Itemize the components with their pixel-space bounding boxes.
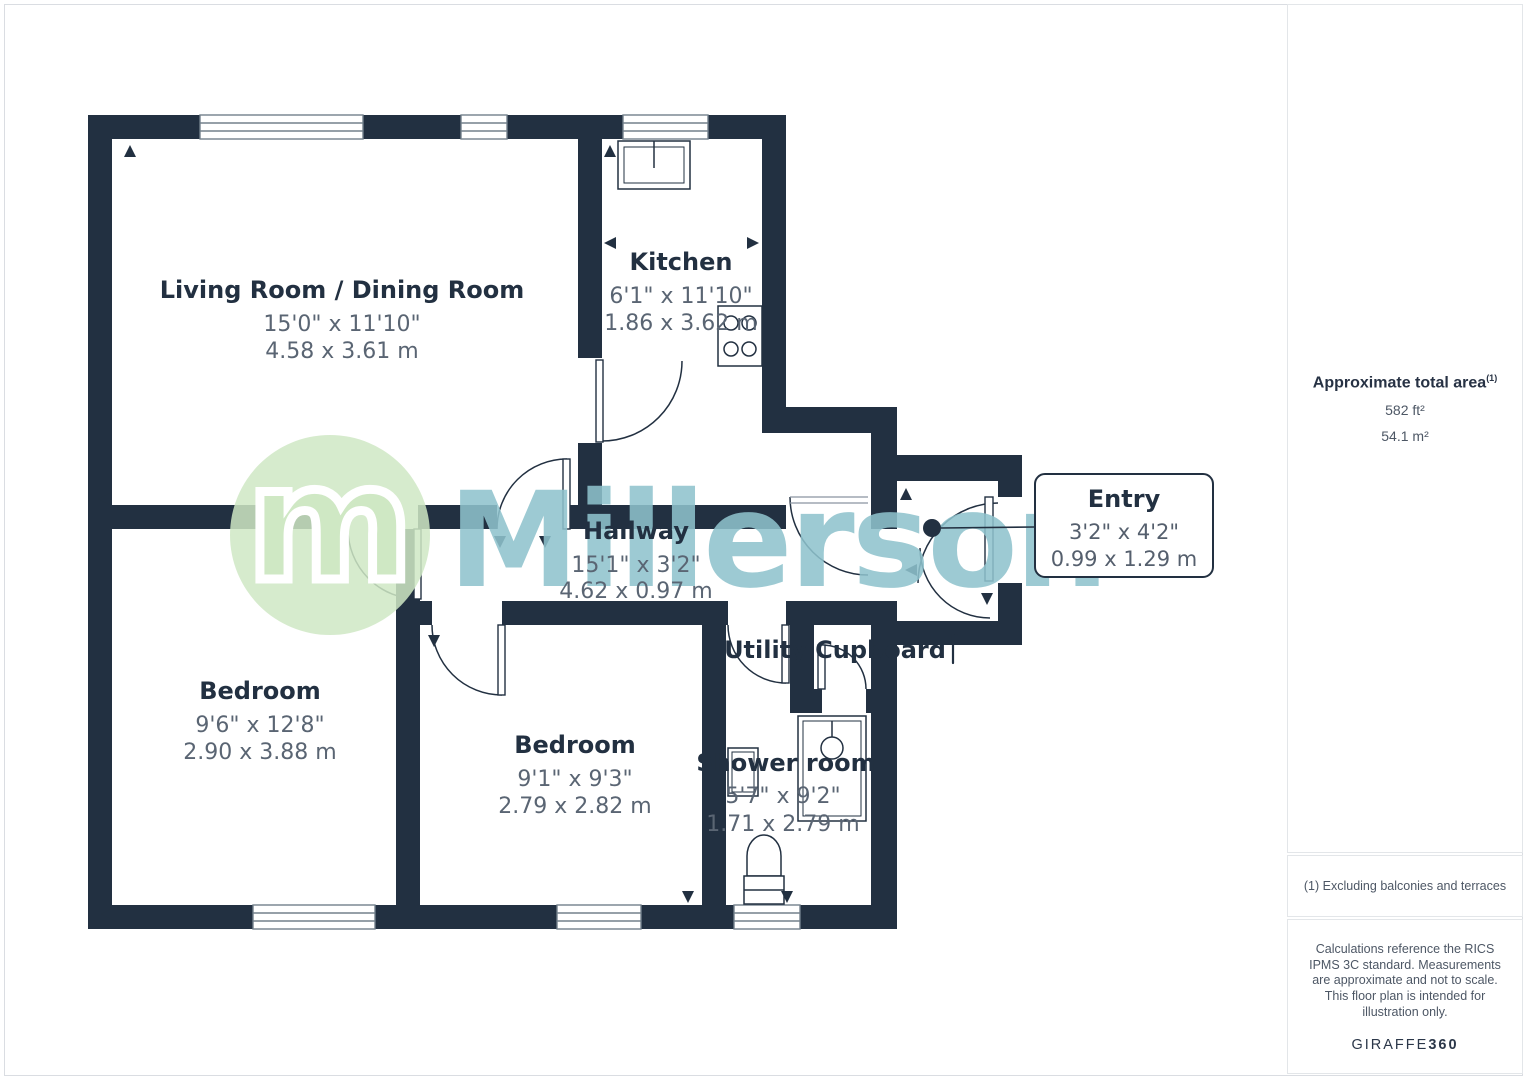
total-area-title: Approximate total area(1) <box>1288 373 1522 392</box>
svg-text:Utility Cupboard: Utility Cupboard <box>724 636 946 664</box>
svg-text:1.86 x 3.62 m: 1.86 x 3.62 m <box>604 311 757 336</box>
window <box>557 905 641 929</box>
svg-text:9'6" x 12'8": 9'6" x 12'8" <box>195 713 324 738</box>
toilet <box>744 835 784 904</box>
giraffe360-logo: GIRAFFE360 <box>1301 1037 1509 1053</box>
room-label-living: Living Room / Dining Room 15'0" x 11'10"… <box>160 276 525 364</box>
window <box>253 905 375 929</box>
svg-text:2.79 x 2.82 m: 2.79 x 2.82 m <box>498 794 651 819</box>
footnote-panel: (1) Excluding balconies and terraces <box>1287 855 1523 917</box>
footnote-marker: (1) <box>1486 373 1497 383</box>
total-area-imperial: 582 ft² <box>1288 402 1522 418</box>
total-area-metric: 54.1 m² <box>1288 428 1522 444</box>
svg-text:4.58 x 3.61 m: 4.58 x 3.61 m <box>265 339 418 364</box>
room-label-utility-cupboard: Utility Cupboard <box>724 636 946 664</box>
svg-text:Hallway: Hallway <box>583 517 689 545</box>
svg-text:3'2" x 4'2": 3'2" x 4'2" <box>1069 520 1179 544</box>
watermark-logo-letter: m <box>247 430 414 617</box>
kitchen-sink <box>618 141 690 189</box>
svg-text:Bedroom: Bedroom <box>514 731 636 759</box>
svg-text:Bedroom: Bedroom <box>199 677 321 705</box>
total-area-panel: Approximate total area(1) 582 ft² 54.1 m… <box>1287 4 1523 853</box>
svg-text:Shower room: Shower room <box>696 749 875 777</box>
floorplan-page: m Millerson Living Room / Dining Room 15… <box>0 0 1527 1080</box>
info-sidebar: Approximate total area(1) 582 ft² 54.1 m… <box>1287 4 1523 1076</box>
svg-text:0.99 x 1.29 m: 0.99 x 1.29 m <box>1051 547 1197 571</box>
window <box>461 115 507 139</box>
window <box>200 115 363 139</box>
svg-text:4.62 x 0.97 m: 4.62 x 0.97 m <box>559 579 712 604</box>
svg-text:15'1" x 3'2": 15'1" x 3'2" <box>571 553 700 578</box>
svg-text:9'1" x 9'3": 9'1" x 9'3" <box>517 767 632 792</box>
window <box>734 905 800 929</box>
svg-text:6'1" x 11'10": 6'1" x 11'10" <box>609 284 752 309</box>
entry-leader-line <box>941 527 1035 528</box>
svg-text:Entry: Entry <box>1088 485 1161 513</box>
svg-text:1.71 x 2.79 m: 1.71 x 2.79 m <box>706 812 859 837</box>
svg-text:Living Room / Dining Room: Living Room / Dining Room <box>160 276 525 304</box>
window <box>623 115 708 139</box>
footnote-text: (1) Excluding balconies and terraces <box>1304 879 1506 893</box>
floor-plan: m Millerson Living Room / Dining Room 15… <box>0 0 1287 1080</box>
svg-text:2.90 x 3.88 m: 2.90 x 3.88 m <box>183 740 336 765</box>
svg-text:15'0" x 11'10": 15'0" x 11'10" <box>263 312 420 337</box>
room-label-bedroom-1: Bedroom 9'6" x 12'8" 2.90 x 3.88 m <box>183 677 336 765</box>
svg-text:5'7" x 9'2": 5'7" x 9'2" <box>725 784 840 809</box>
disclaimer-panel: Calculations reference the RICS IPMS 3C … <box>1287 919 1523 1074</box>
svg-text:Kitchen: Kitchen <box>630 248 733 276</box>
room-label-bedroom-2: Bedroom 9'1" x 9'3" 2.79 x 2.82 m <box>498 731 651 819</box>
room-label-kitchen: Kitchen 6'1" x 11'10" 1.86 x 3.62 m <box>604 248 757 336</box>
disclaimer-text: Calculations reference the RICS IPMS 3C … <box>1301 942 1509 1020</box>
entry-point-dot <box>923 519 941 537</box>
watermark-brand-text: Millerson <box>448 464 1106 618</box>
